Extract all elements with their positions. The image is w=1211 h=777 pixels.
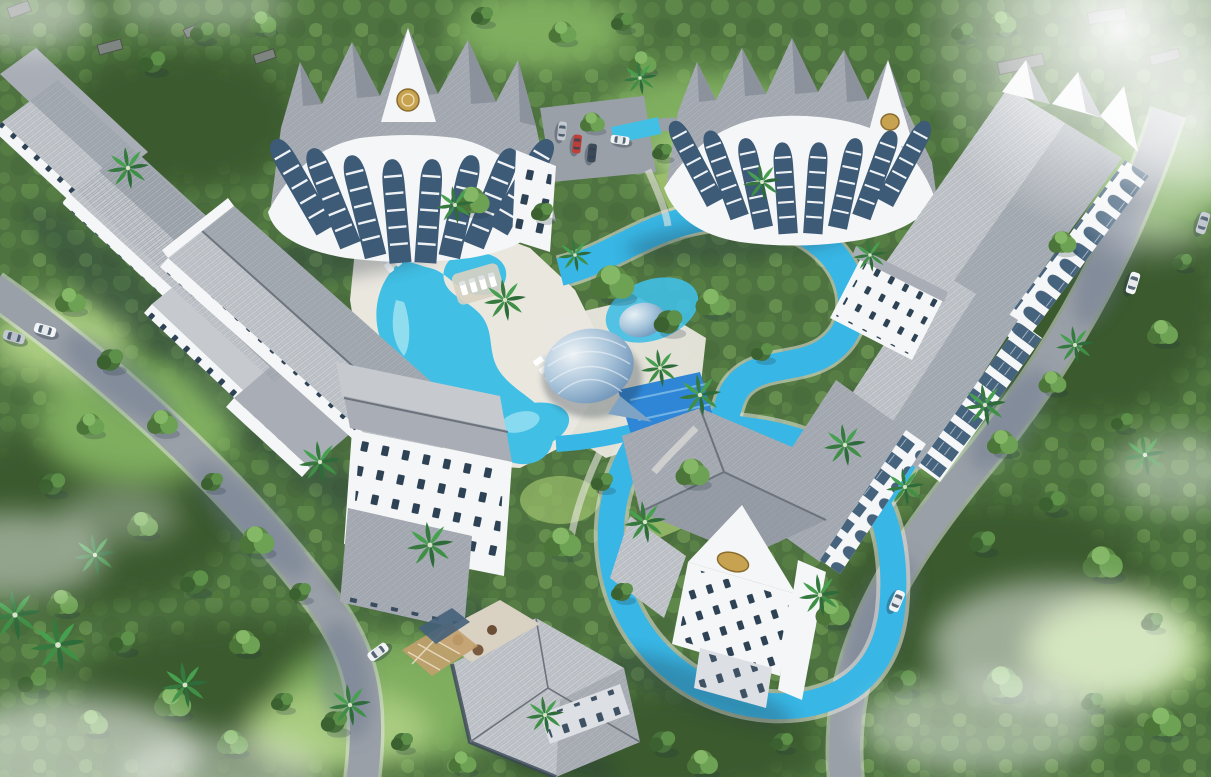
gold-crest: [397, 89, 419, 111]
scene-canvas: [0, 0, 1211, 777]
gold-crest: [881, 114, 899, 130]
aerial-resort-rendering: [0, 0, 1211, 777]
